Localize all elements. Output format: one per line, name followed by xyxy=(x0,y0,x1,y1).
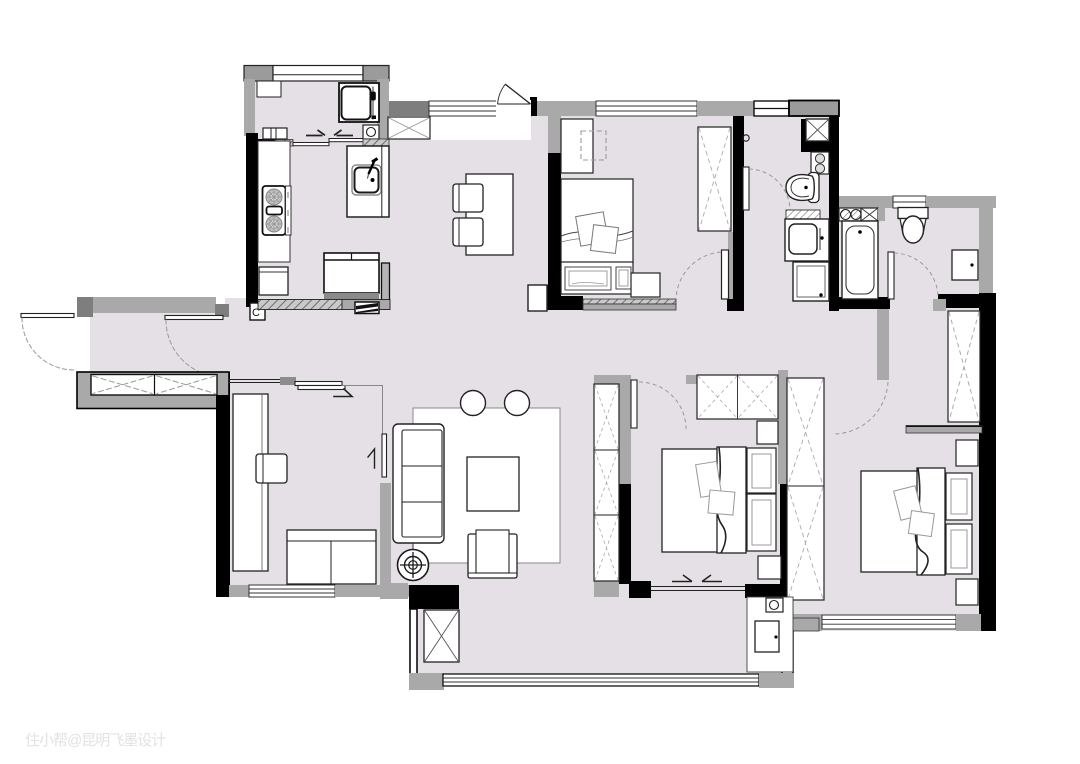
svg-text:住小帮@昆明飞墨设计: 住小帮@昆明飞墨设计 xyxy=(25,732,166,749)
